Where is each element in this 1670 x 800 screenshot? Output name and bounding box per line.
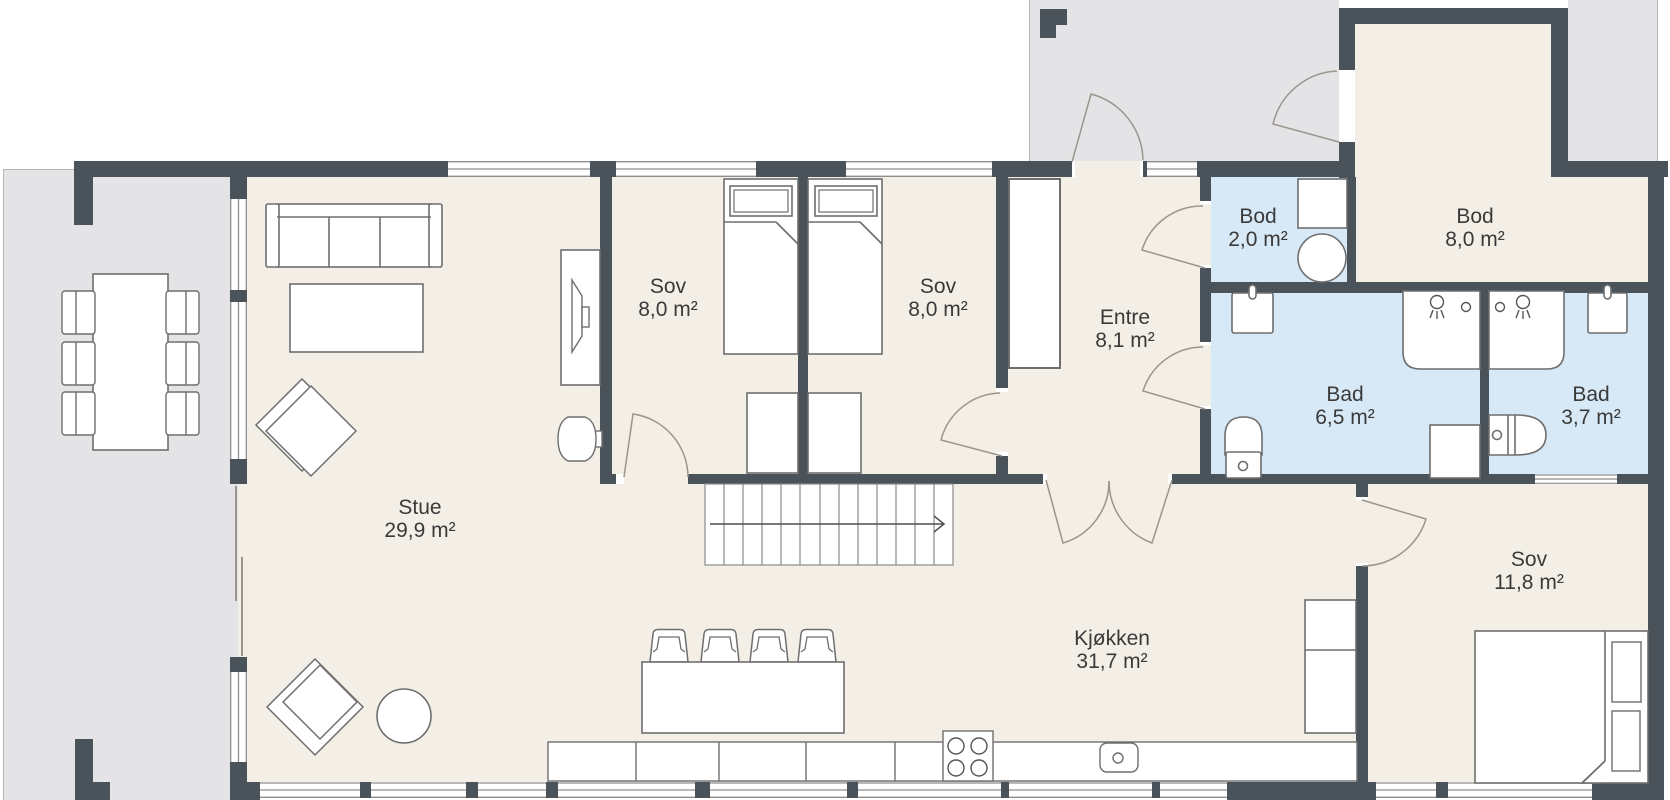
svg-text:31,7 m²: 31,7 m² xyxy=(1076,650,1147,673)
svg-text:Bad: Bad xyxy=(1326,383,1363,406)
svg-text:Kjøkken: Kjøkken xyxy=(1074,627,1150,650)
svg-text:11,8 m²: 11,8 m² xyxy=(1494,571,1564,594)
svg-text:8,0 m²: 8,0 m² xyxy=(908,298,968,321)
svg-text:Stue: Stue xyxy=(398,496,441,519)
svg-text:8,0 m²: 8,0 m² xyxy=(638,298,698,321)
svg-text:3,7 m²: 3,7 m² xyxy=(1561,406,1621,429)
svg-text:8,0 m²: 8,0 m² xyxy=(1445,228,1505,251)
svg-text:Bod: Bod xyxy=(1239,205,1276,228)
svg-text:Sov: Sov xyxy=(920,275,957,298)
svg-text:Sov: Sov xyxy=(650,275,687,298)
svg-text:Bad: Bad xyxy=(1572,383,1609,406)
svg-text:Sov: Sov xyxy=(1511,548,1548,571)
svg-text:6,5 m²: 6,5 m² xyxy=(1315,406,1375,429)
svg-text:Entre: Entre xyxy=(1100,306,1150,329)
svg-text:8,1 m²: 8,1 m² xyxy=(1095,329,1155,352)
svg-text:Bod: Bod xyxy=(1456,205,1493,228)
svg-text:29,9 m²: 29,9 m² xyxy=(384,519,455,542)
svg-text:2,0 m²: 2,0 m² xyxy=(1228,228,1288,251)
